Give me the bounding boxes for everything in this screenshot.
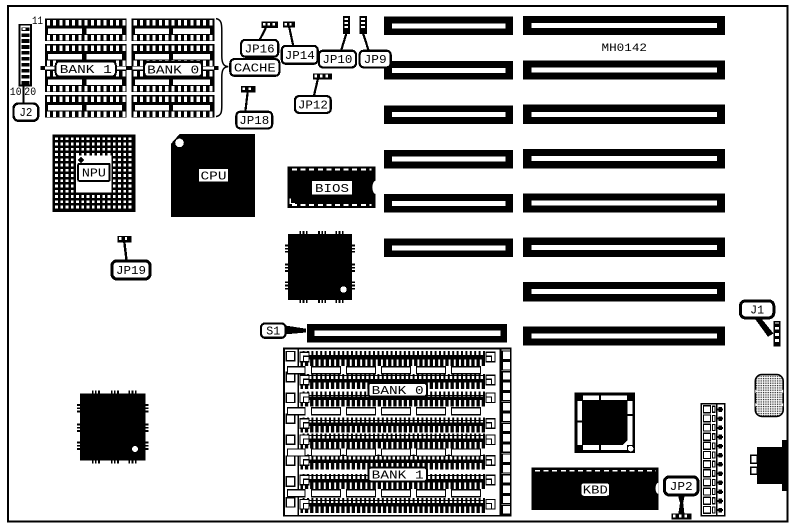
svg-text:J2: J2 [19, 106, 32, 120]
svg-text:S1: S1 [266, 325, 280, 339]
svg-text:JP12: JP12 [298, 99, 328, 113]
svg-text:10: 10 [10, 87, 22, 99]
svg-text:BANK 1: BANK 1 [60, 63, 112, 77]
svg-text:BIOS: BIOS [315, 182, 349, 196]
svg-text:CACHE: CACHE [234, 62, 276, 76]
svg-text:20: 20 [24, 87, 36, 99]
svg-text:J1: J1 [750, 303, 764, 317]
svg-text:11: 11 [32, 16, 43, 28]
svg-text:NPU: NPU [82, 166, 106, 180]
svg-text:JP10: JP10 [322, 53, 352, 67]
svg-text:CPU: CPU [201, 169, 227, 183]
svg-text:BANK 0: BANK 0 [147, 63, 199, 77]
svg-text:KBD: KBD [583, 484, 608, 498]
svg-text:JP14: JP14 [285, 49, 315, 63]
svg-text:JP2: JP2 [670, 480, 693, 494]
svg-text:JP16: JP16 [245, 42, 275, 56]
svg-text:JP19: JP19 [116, 264, 146, 278]
svg-text:BANK 0: BANK 0 [372, 384, 424, 398]
svg-text:BANK 1: BANK 1 [372, 469, 424, 483]
svg-text:JP18: JP18 [239, 114, 269, 128]
svg-text:JP9: JP9 [364, 53, 387, 67]
svg-text:MH0142: MH0142 [602, 43, 648, 55]
